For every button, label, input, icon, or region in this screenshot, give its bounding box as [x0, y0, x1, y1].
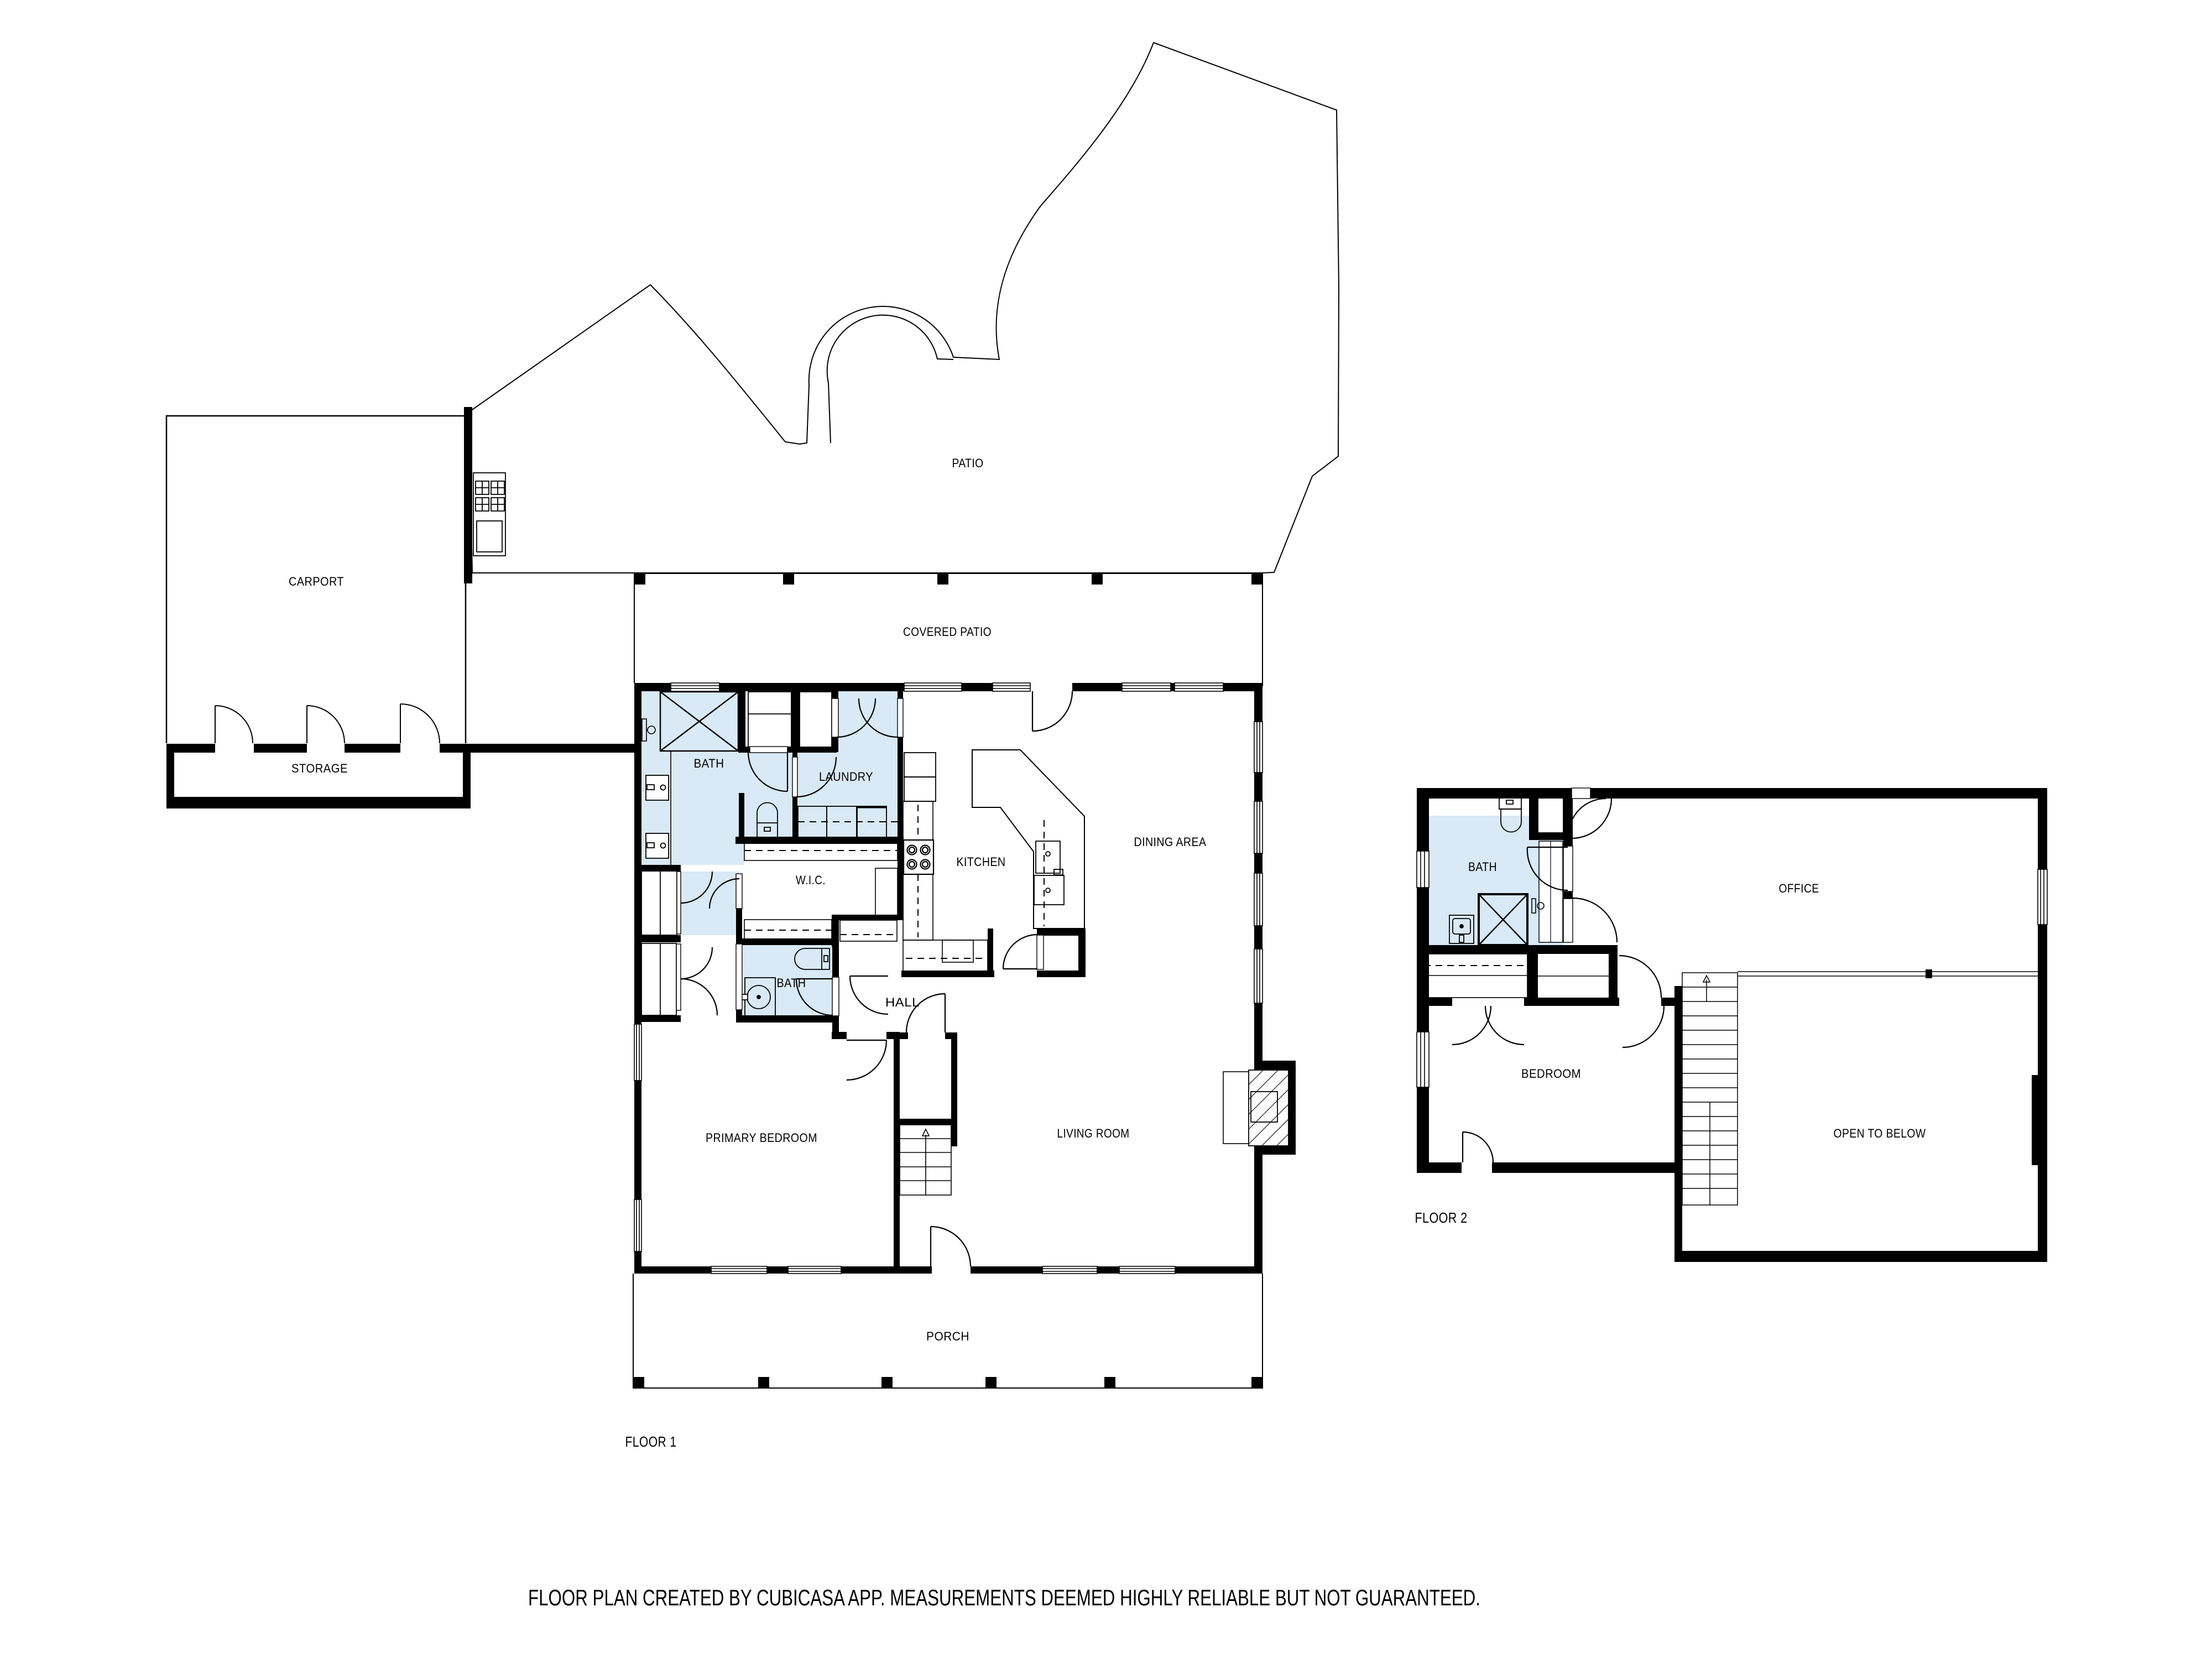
- svg-text:KITCHEN: KITCHEN: [957, 855, 1006, 869]
- svg-text:W.I.C.: W.I.C.: [796, 873, 826, 887]
- svg-text:BATH: BATH: [694, 757, 724, 770]
- svg-text:PATIO: PATIO: [952, 456, 984, 470]
- svg-text:STORAGE: STORAGE: [291, 761, 348, 775]
- svg-text:FLOOR 1: FLOOR 1: [625, 1433, 677, 1450]
- svg-text:BATH: BATH: [777, 976, 806, 990]
- svg-text:CARPORT: CARPORT: [289, 575, 344, 588]
- svg-text:OFFICE: OFFICE: [1779, 881, 1819, 895]
- svg-text:LIVING ROOM: LIVING ROOM: [1057, 1126, 1130, 1140]
- svg-text:FLOOR PLAN CREATED BY CUBICASA: FLOOR PLAN CREATED BY CUBICASA APP. MEAS…: [528, 1585, 1480, 1610]
- svg-text:HALL: HALL: [885, 995, 920, 1009]
- svg-text:OPEN TO BELOW: OPEN TO BELOW: [1834, 1126, 1926, 1140]
- svg-text:PORCH: PORCH: [926, 1329, 969, 1343]
- svg-text:BEDROOM: BEDROOM: [1521, 1067, 1581, 1081]
- svg-text:FLOOR 2: FLOOR 2: [1415, 1209, 1468, 1226]
- svg-text:PRIMARY BEDROOM: PRIMARY BEDROOM: [706, 1131, 817, 1145]
- svg-text:LAUNDRY: LAUNDRY: [819, 770, 873, 784]
- svg-text:BATH: BATH: [1468, 860, 1497, 874]
- svg-text:COVERED PATIO: COVERED PATIO: [903, 625, 992, 639]
- svg-text:DINING AREA: DINING AREA: [1134, 835, 1207, 849]
